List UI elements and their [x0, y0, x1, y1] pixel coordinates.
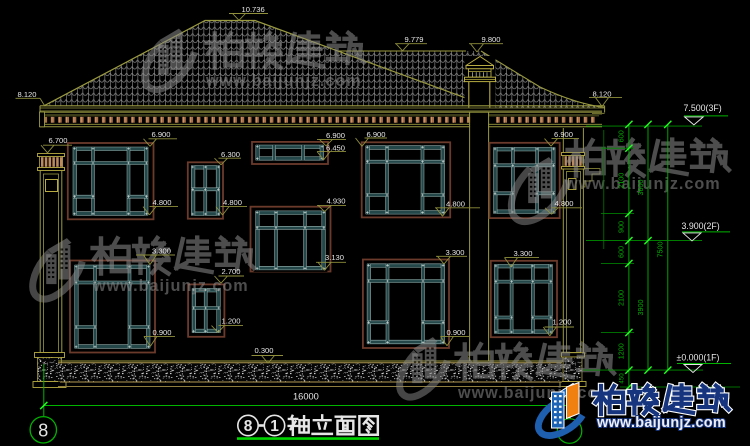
svg-text:6.700: 6.700: [49, 136, 68, 145]
svg-text:0.300: 0.300: [255, 346, 274, 355]
svg-text:450: 450: [619, 373, 626, 384]
svg-text:4.800: 4.800: [446, 199, 465, 208]
svg-text:6.900: 6.900: [152, 130, 171, 139]
svg-text:±0.000(1F): ±0.000(1F): [677, 353, 720, 363]
svg-text:2100: 2100: [617, 290, 626, 306]
svg-text:3600: 3600: [636, 180, 645, 196]
svg-text:1200: 1200: [617, 343, 626, 359]
svg-text:2100: 2100: [617, 173, 626, 189]
svg-text:www.baijunjz.com: www.baijunjz.com: [205, 72, 362, 90]
svg-text:600: 600: [617, 246, 626, 258]
svg-text:4.800: 4.800: [223, 198, 242, 207]
svg-text:1.200: 1.200: [222, 316, 241, 325]
svg-text:6.900: 6.900: [554, 130, 573, 139]
svg-text:1.200: 1.200: [553, 317, 572, 326]
svg-text:7500: 7500: [655, 242, 664, 258]
svg-text:4.930: 4.930: [327, 197, 346, 206]
svg-text:10.736: 10.736: [242, 5, 265, 14]
svg-text:9.800: 9.800: [482, 35, 501, 44]
svg-text:0.900: 0.900: [447, 328, 466, 337]
svg-text:3.130: 3.130: [325, 253, 344, 262]
svg-text:16000: 16000: [293, 392, 319, 402]
svg-text:8.120: 8.120: [18, 90, 37, 99]
svg-text:6.450: 6.450: [326, 143, 345, 152]
svg-text:www.baijunjz.com: www.baijunjz.com: [92, 277, 249, 295]
svg-text:3.300: 3.300: [152, 246, 171, 255]
svg-text:3.300: 3.300: [446, 248, 465, 257]
svg-text:7.500(3F): 7.500(3F): [684, 103, 722, 113]
svg-text:www.baijunjz.com: www.baijunjz.com: [596, 415, 726, 431]
svg-text:4.800: 4.800: [555, 199, 574, 208]
svg-text:0.900: 0.900: [153, 328, 172, 337]
svg-text:2.700: 2.700: [222, 267, 241, 276]
svg-text:www.baijunjz.com: www.baijunjz.com: [457, 384, 614, 402]
svg-text:4.800: 4.800: [153, 198, 172, 207]
svg-text:6.300: 6.300: [221, 150, 240, 159]
svg-text:3.300: 3.300: [514, 249, 533, 258]
svg-text:6.900: 6.900: [326, 131, 345, 140]
svg-text:9.779: 9.779: [405, 35, 424, 44]
svg-text:3.900(2F): 3.900(2F): [682, 221, 720, 231]
svg-text:3900: 3900: [636, 300, 645, 316]
svg-text:600: 600: [617, 130, 626, 142]
svg-text:8: 8: [244, 418, 253, 435]
svg-text:900: 900: [617, 221, 626, 233]
svg-text:8: 8: [38, 421, 48, 441]
svg-text:1: 1: [270, 418, 279, 435]
